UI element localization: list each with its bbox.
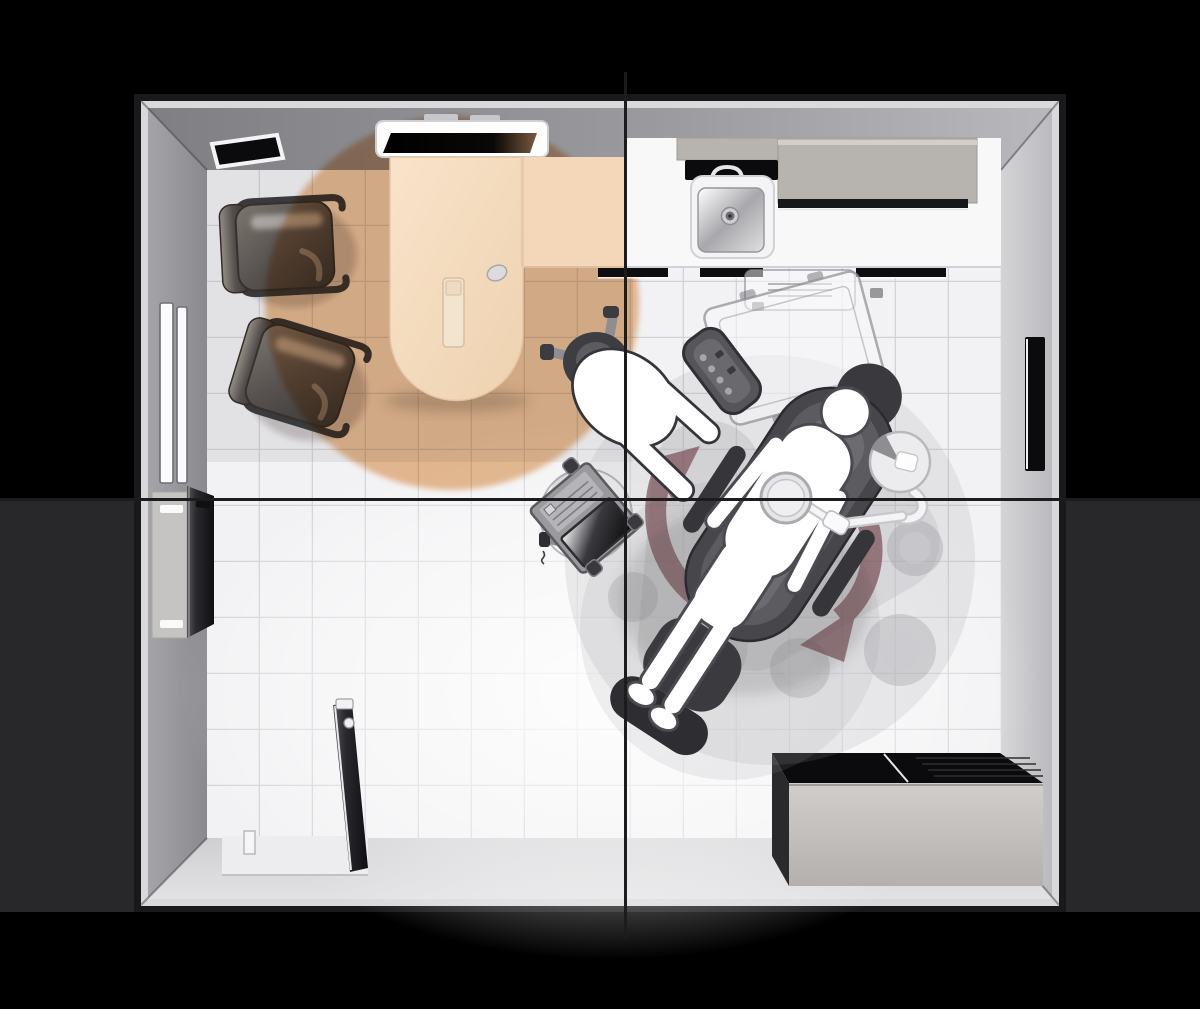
upper-cabinet-left	[677, 138, 778, 160]
desk-return-wing	[521, 157, 627, 267]
bottom-storage-cabinet	[772, 753, 1043, 886]
shelf-screen	[383, 133, 537, 153]
left-wall-light	[160, 303, 187, 483]
door-top-cap	[336, 699, 353, 709]
sink-drain	[728, 214, 732, 218]
door-jamb	[244, 831, 255, 854]
cabinet-front	[789, 783, 1043, 886]
door-hinge	[344, 718, 354, 728]
horizontal-guide-line	[0, 498, 1200, 501]
right-wall-window-slot	[1025, 337, 1045, 471]
hygiene-counter-area	[598, 138, 1001, 278]
upper-cabinet-main	[778, 138, 977, 203]
cabinet-shadow	[778, 199, 968, 208]
treatment-room	[134, 94, 1066, 960]
left-storage-cabinet	[152, 486, 214, 638]
floor-plan-illustration	[0, 0, 1200, 1009]
vertical-guide-line	[624, 72, 627, 938]
wall-monitor-shelf	[376, 114, 548, 157]
hygiene-sink	[685, 160, 778, 258]
chairside-delivery-unit	[870, 432, 930, 492]
canvas	[0, 0, 1200, 1009]
